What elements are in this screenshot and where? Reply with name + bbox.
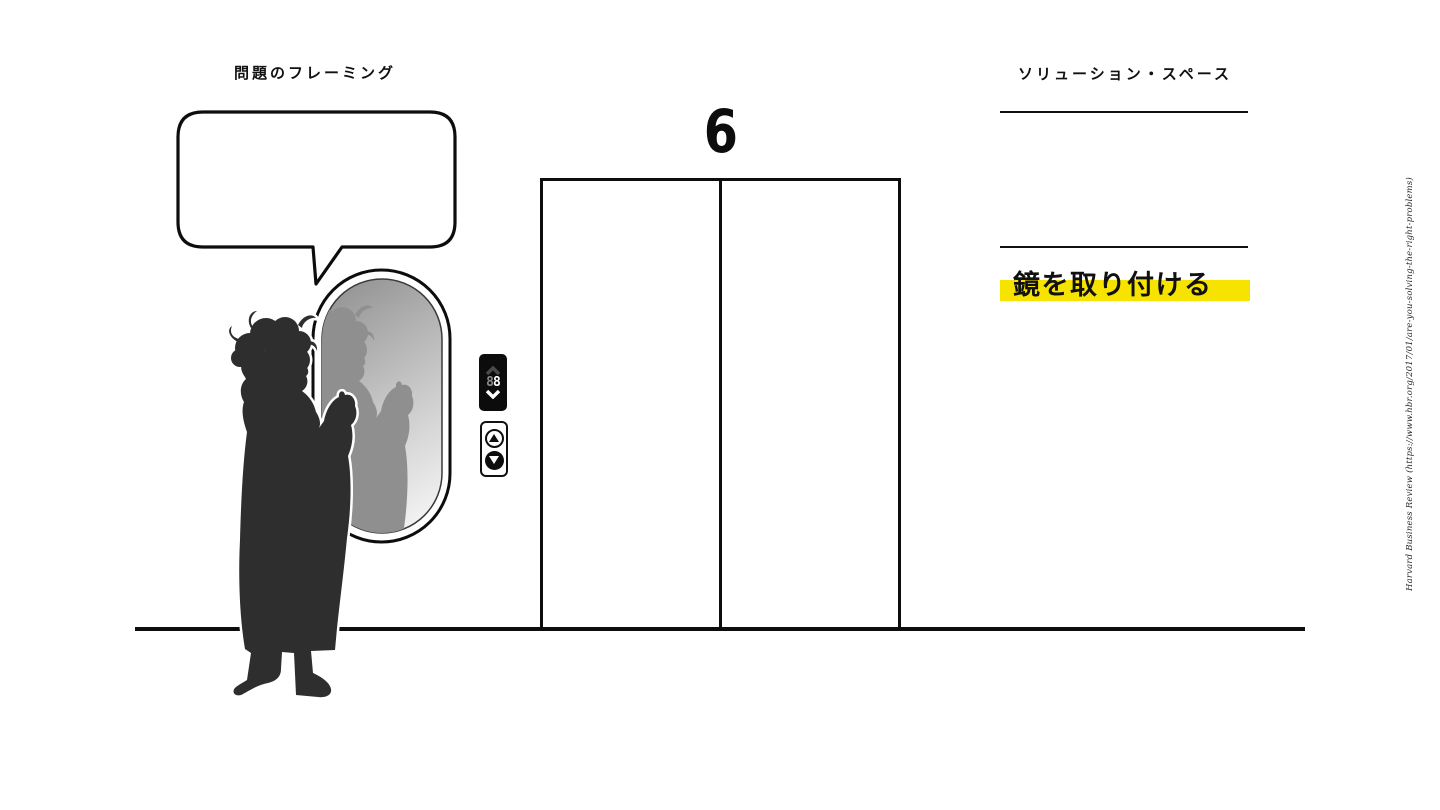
chevron-down-icon (485, 390, 501, 399)
chevron-up-icon (485, 366, 501, 375)
mirror (313, 270, 450, 542)
call-button-down (485, 451, 504, 470)
indicator-digits: 88 (486, 376, 500, 389)
solution-space-title: ソリューション・スペース (1010, 63, 1240, 84)
citation-text: Harvard Business Review (https://www.hbr… (1405, 231, 1419, 591)
elevator-doors (540, 178, 901, 630)
solution-blank-line-2 (1000, 246, 1248, 248)
floor-number: 6 (540, 102, 901, 162)
indicator-digit-dim: 8 (486, 375, 493, 390)
solution-answer: 鏡を取り付ける (1000, 263, 1252, 303)
solution-blank-line-1 (1000, 111, 1248, 113)
speech-bubble (178, 112, 455, 284)
problem-framing-title: 問題のフレーミング (200, 62, 430, 83)
elevator-door-divider (719, 181, 722, 627)
answer-text: 鏡を取り付ける (1013, 263, 1213, 302)
person-silhouette (229, 311, 356, 697)
indicator-digit-lit: 8 (493, 375, 500, 390)
triangle-up-icon (489, 434, 499, 442)
triangle-down-icon (489, 456, 499, 464)
elevator-call-panel (480, 421, 508, 477)
call-button-up (485, 429, 504, 448)
floor-indicator-display: 88 (479, 354, 507, 411)
